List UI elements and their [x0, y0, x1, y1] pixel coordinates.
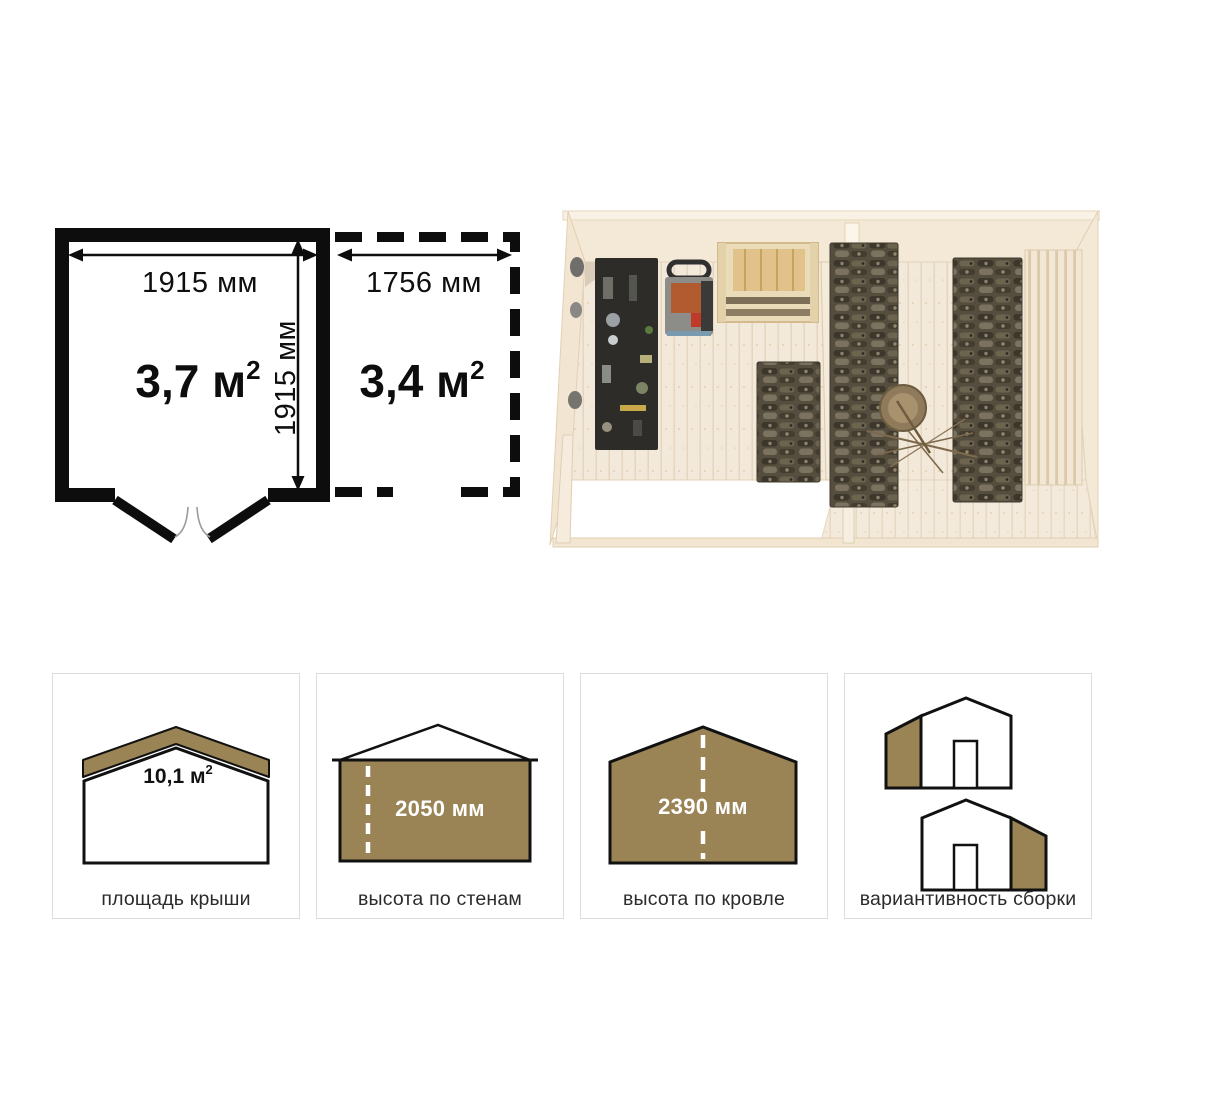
roof-height-icon: 2390 мм — [580, 673, 828, 895]
firewood-stack-right-room — [953, 258, 1022, 502]
card-roof-area: 10,1 м2 площадь крыши — [52, 673, 300, 919]
main-width-arrow — [68, 249, 318, 262]
roof-area-icon: 10,1 м2 — [52, 673, 300, 895]
shed-spec-sheet: 1915 мм 1756 мм 1915 мм 3,7 м2 3,4 м2 — [0, 0, 1208, 1106]
slatted-wall — [1025, 250, 1082, 485]
card-wall-height-label: высота по стенам — [317, 888, 563, 911]
card-roof-height-label: высота по кровле — [581, 888, 827, 911]
roof-height-value: 2390 мм — [658, 794, 748, 819]
card-assembly-variants: вариантивность сборки — [844, 673, 1092, 919]
firewood-stack-divider — [830, 243, 898, 507]
floor-plan: 1915 мм 1756 мм 1915 мм 3,7 м2 3,4 м2 — [50, 220, 530, 560]
door-leaf-right — [209, 500, 268, 539]
door-swing-arc-right — [197, 507, 210, 537]
annex-width-arrow — [337, 249, 512, 262]
firewood-stack-left-room — [757, 362, 820, 482]
card-assembly-variants-label: вариантивность сборки — [845, 888, 1091, 911]
main-area-label: 3,7 м2 — [135, 355, 260, 407]
feature-cards: 10,1 м2 площадь крыши 2050 мм высота по … — [52, 673, 1092, 919]
annex-area-label: 3,4 м2 — [359, 355, 484, 407]
assembly-variants-icon — [844, 673, 1092, 903]
interior-render — [545, 205, 1100, 560]
house-variant-annex-right — [922, 800, 1046, 890]
wall-height-icon: 2050 мм — [316, 673, 564, 895]
card-wall-height: 2050 мм высота по стенам — [316, 673, 564, 919]
main-depth-label: 1915 мм — [270, 320, 302, 436]
base-rim — [553, 538, 1098, 547]
door-swing-arc-left — [175, 507, 188, 537]
roof-outline — [340, 725, 530, 760]
card-roof-height: 2390 мм высота по кровле — [580, 673, 828, 919]
wooden-crate — [718, 243, 818, 322]
door-leaf-left — [115, 500, 174, 539]
house-variant-annex-left — [886, 698, 1011, 788]
main-width-label: 1915 мм — [142, 267, 258, 299]
card-roof-area-label: площадь крыши — [53, 888, 299, 911]
annex-width-label: 1756 мм — [366, 267, 482, 299]
wall-height-value: 2050 мм — [395, 796, 485, 821]
annex-outline-gap — [393, 483, 455, 501]
roof-area-value: 10,1 м2 — [143, 762, 212, 788]
